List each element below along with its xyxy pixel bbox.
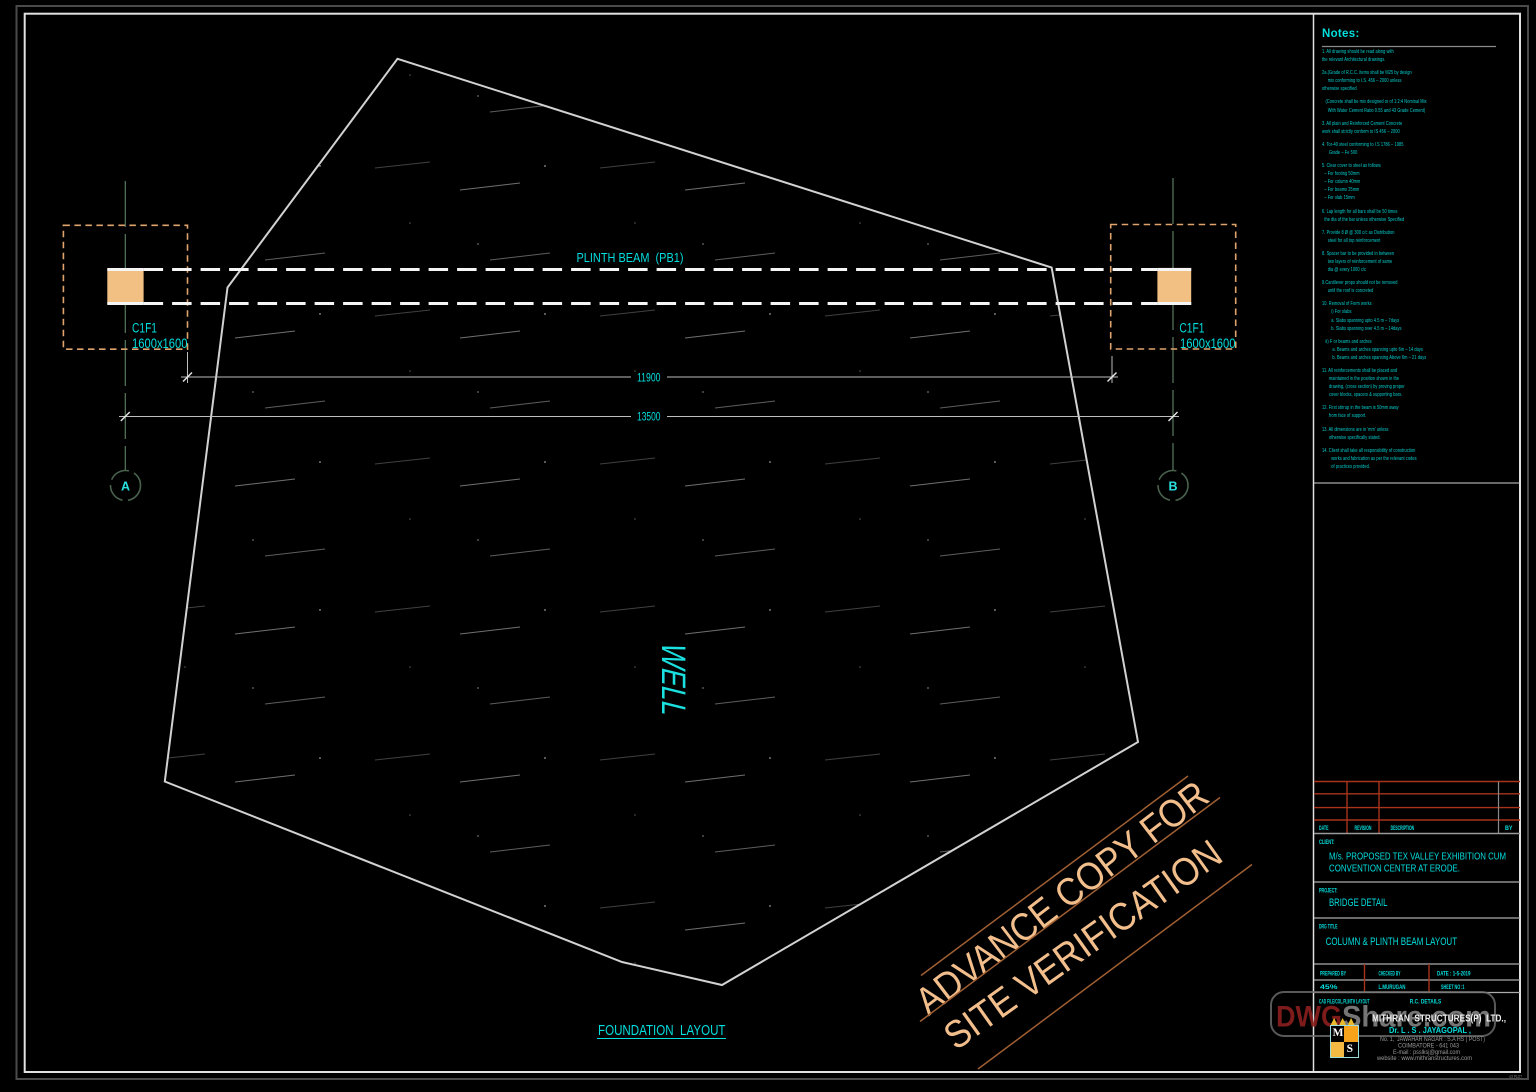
svg-text:Dr. L . S . JAYAGOPAL ,: Dr. L . S . JAYAGOPAL , (1389, 1026, 1471, 1035)
svg-text:website : www.mithranstructure: website : www.mithranstructures.com (1376, 1056, 1472, 1062)
svg-text:A3 PLOT: A3 PLOT (1509, 1074, 1522, 1079)
svg-text:No. 1, JAWAHAR NAGAR : S.A HS: No. 1, JAWAHAR NAGAR : S.A HS ( POST) (1380, 1037, 1485, 1043)
svg-text:MITHRAN STRUCTURES(P) LTD.,: MITHRAN STRUCTURES(P) LTD., (1372, 1014, 1506, 1025)
svg-text:COIMBATORE - 641 043: COIMBATORE - 641 043 (1398, 1044, 1460, 1050)
